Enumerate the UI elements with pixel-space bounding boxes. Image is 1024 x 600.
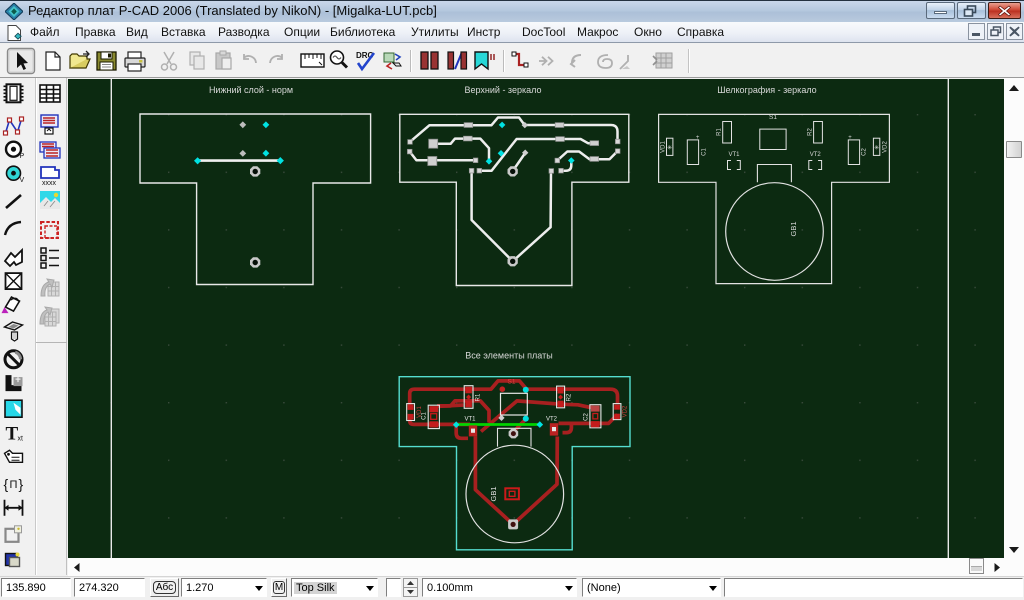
svg-text:П: П xyxy=(10,479,18,491)
svg-text:S1: S1 xyxy=(769,114,777,121)
svg-text:R2: R2 xyxy=(567,393,573,401)
svg-text:VT2: VT2 xyxy=(546,416,558,422)
svg-text:Все элементы платы: Все элементы платы xyxy=(465,351,552,361)
svg-text:+: + xyxy=(696,135,700,141)
svg-text:C2: C2 xyxy=(584,413,590,421)
svg-text:Нижний слой - норм: Нижний слой - норм xyxy=(209,85,293,95)
svg-text:{: { xyxy=(4,476,9,492)
svg-text:VT2: VT2 xyxy=(810,152,822,158)
svg-text:Шелкография - зеркало: Шелкография - зеркало xyxy=(717,85,816,95)
svg-text:+: + xyxy=(848,135,852,141)
svg-text:VD1: VD1 xyxy=(661,141,667,153)
svg-text:✳: ✳ xyxy=(874,145,879,152)
svg-text:}: } xyxy=(19,476,24,492)
svg-text:GB1: GB1 xyxy=(789,221,798,236)
svg-text:R2: R2 xyxy=(808,128,814,136)
svg-text:V: V xyxy=(20,177,25,184)
svg-text:VD2: VD2 xyxy=(623,405,629,417)
svg-text:GB1: GB1 xyxy=(489,486,498,501)
svg-text:R1: R1 xyxy=(476,393,482,401)
svg-text:R1: R1 xyxy=(717,128,723,136)
svg-text:Верхний - зеркало: Верхний - зеркало xyxy=(465,85,542,95)
svg-text:S1: S1 xyxy=(508,379,516,386)
svg-text:VD1: VD1 xyxy=(417,406,423,418)
svg-text:P: P xyxy=(20,153,25,160)
svg-text:VT1: VT1 xyxy=(464,416,476,422)
svg-text:xxxx: xxxx xyxy=(42,180,57,187)
svg-text:xt: xt xyxy=(18,436,24,443)
svg-text:✳: ✳ xyxy=(667,145,672,152)
svg-text:C2: C2 xyxy=(862,148,868,156)
svg-text:VD2: VD2 xyxy=(883,141,889,153)
svg-text:C1: C1 xyxy=(702,148,708,156)
svg-text:VT1: VT1 xyxy=(728,152,740,158)
